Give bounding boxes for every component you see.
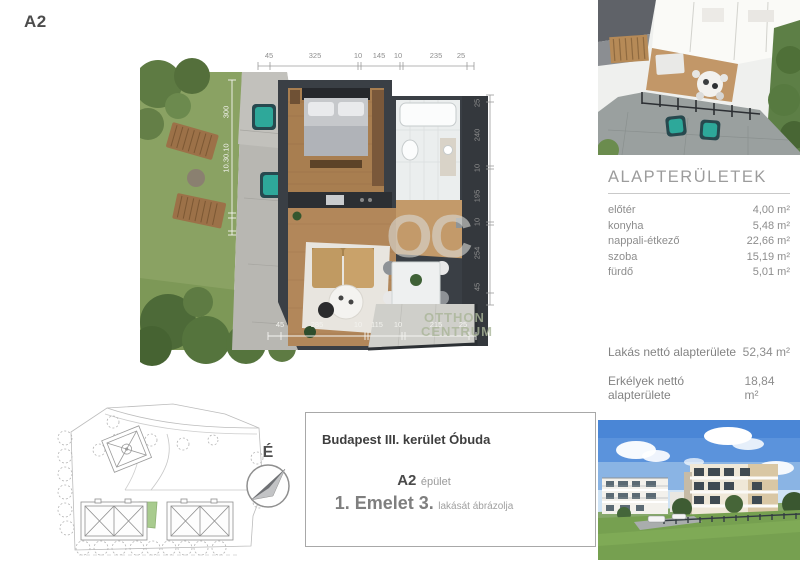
watermark-word-1: OTTHON: [424, 310, 485, 325]
area-label: konyha: [608, 219, 643, 235]
dim-bottom-4: 115: [371, 320, 383, 329]
dim-bottom-1: 45: [276, 320, 284, 329]
location-title: Budapest III. kerület Óbuda: [322, 432, 595, 447]
area-value: 5,48 m²: [753, 219, 790, 235]
total-label: Erkélyek nettó alapterülete: [608, 374, 745, 402]
building-left: [602, 478, 668, 514]
title-divider: [608, 193, 790, 194]
kitchen: [288, 192, 392, 208]
unit-word: lakását ábrázolja: [438, 501, 513, 512]
total-label: Lakás nettó alapterülete: [608, 345, 736, 359]
building-word: épület: [421, 476, 451, 488]
wardrobe: [372, 90, 384, 186]
compass-north-label: É: [263, 442, 274, 461]
dim-right-1: 25: [473, 99, 482, 107]
dim-bottom-2: 285: [311, 320, 324, 329]
area-label: nappali-étkező: [608, 234, 680, 250]
dim-right-4: 195: [473, 190, 482, 203]
area-label: előtér: [608, 203, 636, 219]
building-line: A2 épület: [318, 472, 530, 490]
floor-unit-line: 1. Emelet 3. lakását ábrázolja: [318, 493, 530, 514]
areas-panel: ALAPTERÜLETEK előtér 4,00 m² konyha 5,48…: [598, 0, 800, 560]
dim-top-1: 45: [265, 51, 273, 60]
building-code: A2: [397, 472, 416, 489]
area-value: 5,01 m²: [753, 265, 790, 281]
dim-top-3: 10: [354, 51, 362, 60]
area-row: előtér 4,00 m²: [608, 203, 790, 219]
compass: É: [240, 440, 296, 516]
total-value: 18,84 m²: [745, 374, 791, 402]
total-value: 52,34 m²: [743, 345, 790, 359]
watermark-word-2: CENTRUM: [421, 324, 493, 339]
dim-bottom-5: 10: [394, 320, 402, 329]
floor-unit: 1. Emelet 3.: [335, 493, 434, 513]
total-net-area-row: Lakás nettó alapterülete 52,34 m²: [608, 345, 790, 359]
areas-title: ALAPTERÜLETEK: [608, 168, 790, 187]
area-value: 22,66 m²: [747, 234, 790, 250]
dim-left-2: 10.30.10: [222, 143, 231, 172]
area-value: 4,00 m²: [753, 203, 790, 219]
dim-top-7: 25: [457, 51, 465, 60]
toilet: [402, 140, 418, 160]
dim-bottom-3: 10: [354, 320, 362, 329]
site-building-a: [81, 499, 147, 540]
kitchen-sink: [326, 195, 344, 205]
area-row: szoba 15,19 m²: [608, 250, 790, 266]
area-row: nappali-étkező 22,66 m²: [608, 234, 790, 250]
info-box: Budapest III. kerület Óbuda A2 épület 1.…: [305, 412, 596, 547]
building-exterior-render: [598, 420, 800, 560]
site-building-upper: [102, 426, 152, 473]
sofa: [312, 248, 342, 288]
coffee-table: [329, 285, 363, 319]
site-building-b: [167, 499, 233, 540]
area-row: fürdő 5,01 m²: [608, 265, 790, 281]
bathroom: [396, 100, 460, 200]
floor-plan-render: 45 325 10 145 10 235 25 45 285 10 115 10…: [140, 50, 512, 400]
area-row: konyha 5,48 m²: [608, 219, 790, 235]
sheet-label: A2: [24, 12, 47, 32]
dim-top-4: 145: [373, 51, 386, 60]
dim-right-2: 240: [473, 129, 482, 142]
watermark-logo: OC: [386, 202, 470, 271]
dim-top-2: 325: [309, 51, 322, 60]
bathtub: [400, 103, 456, 126]
dim-right-7: 45: [473, 283, 482, 291]
area-label: szoba: [608, 250, 637, 266]
nightstand: [290, 90, 300, 104]
dim-right-6: 254: [473, 247, 482, 260]
garden-table: [187, 169, 205, 187]
bed-bench: [310, 160, 362, 168]
bedroom: [288, 88, 384, 192]
dim-top-6: 235: [430, 51, 443, 60]
dim-right-3: 10: [473, 164, 482, 172]
dim-right-5: 10: [473, 218, 482, 226]
side-table: [318, 302, 334, 318]
dim-left-1: 300: [222, 106, 231, 119]
bathroom-counter: [440, 138, 456, 176]
dim-top-5: 10: [394, 51, 402, 60]
total-balcony-area-row: Erkélyek nettó alapterülete 18,84 m²: [608, 374, 790, 402]
area-label: fürdő: [608, 265, 633, 281]
area-value: 15,19 m²: [747, 250, 790, 266]
apartment-3d-render: [598, 0, 800, 155]
